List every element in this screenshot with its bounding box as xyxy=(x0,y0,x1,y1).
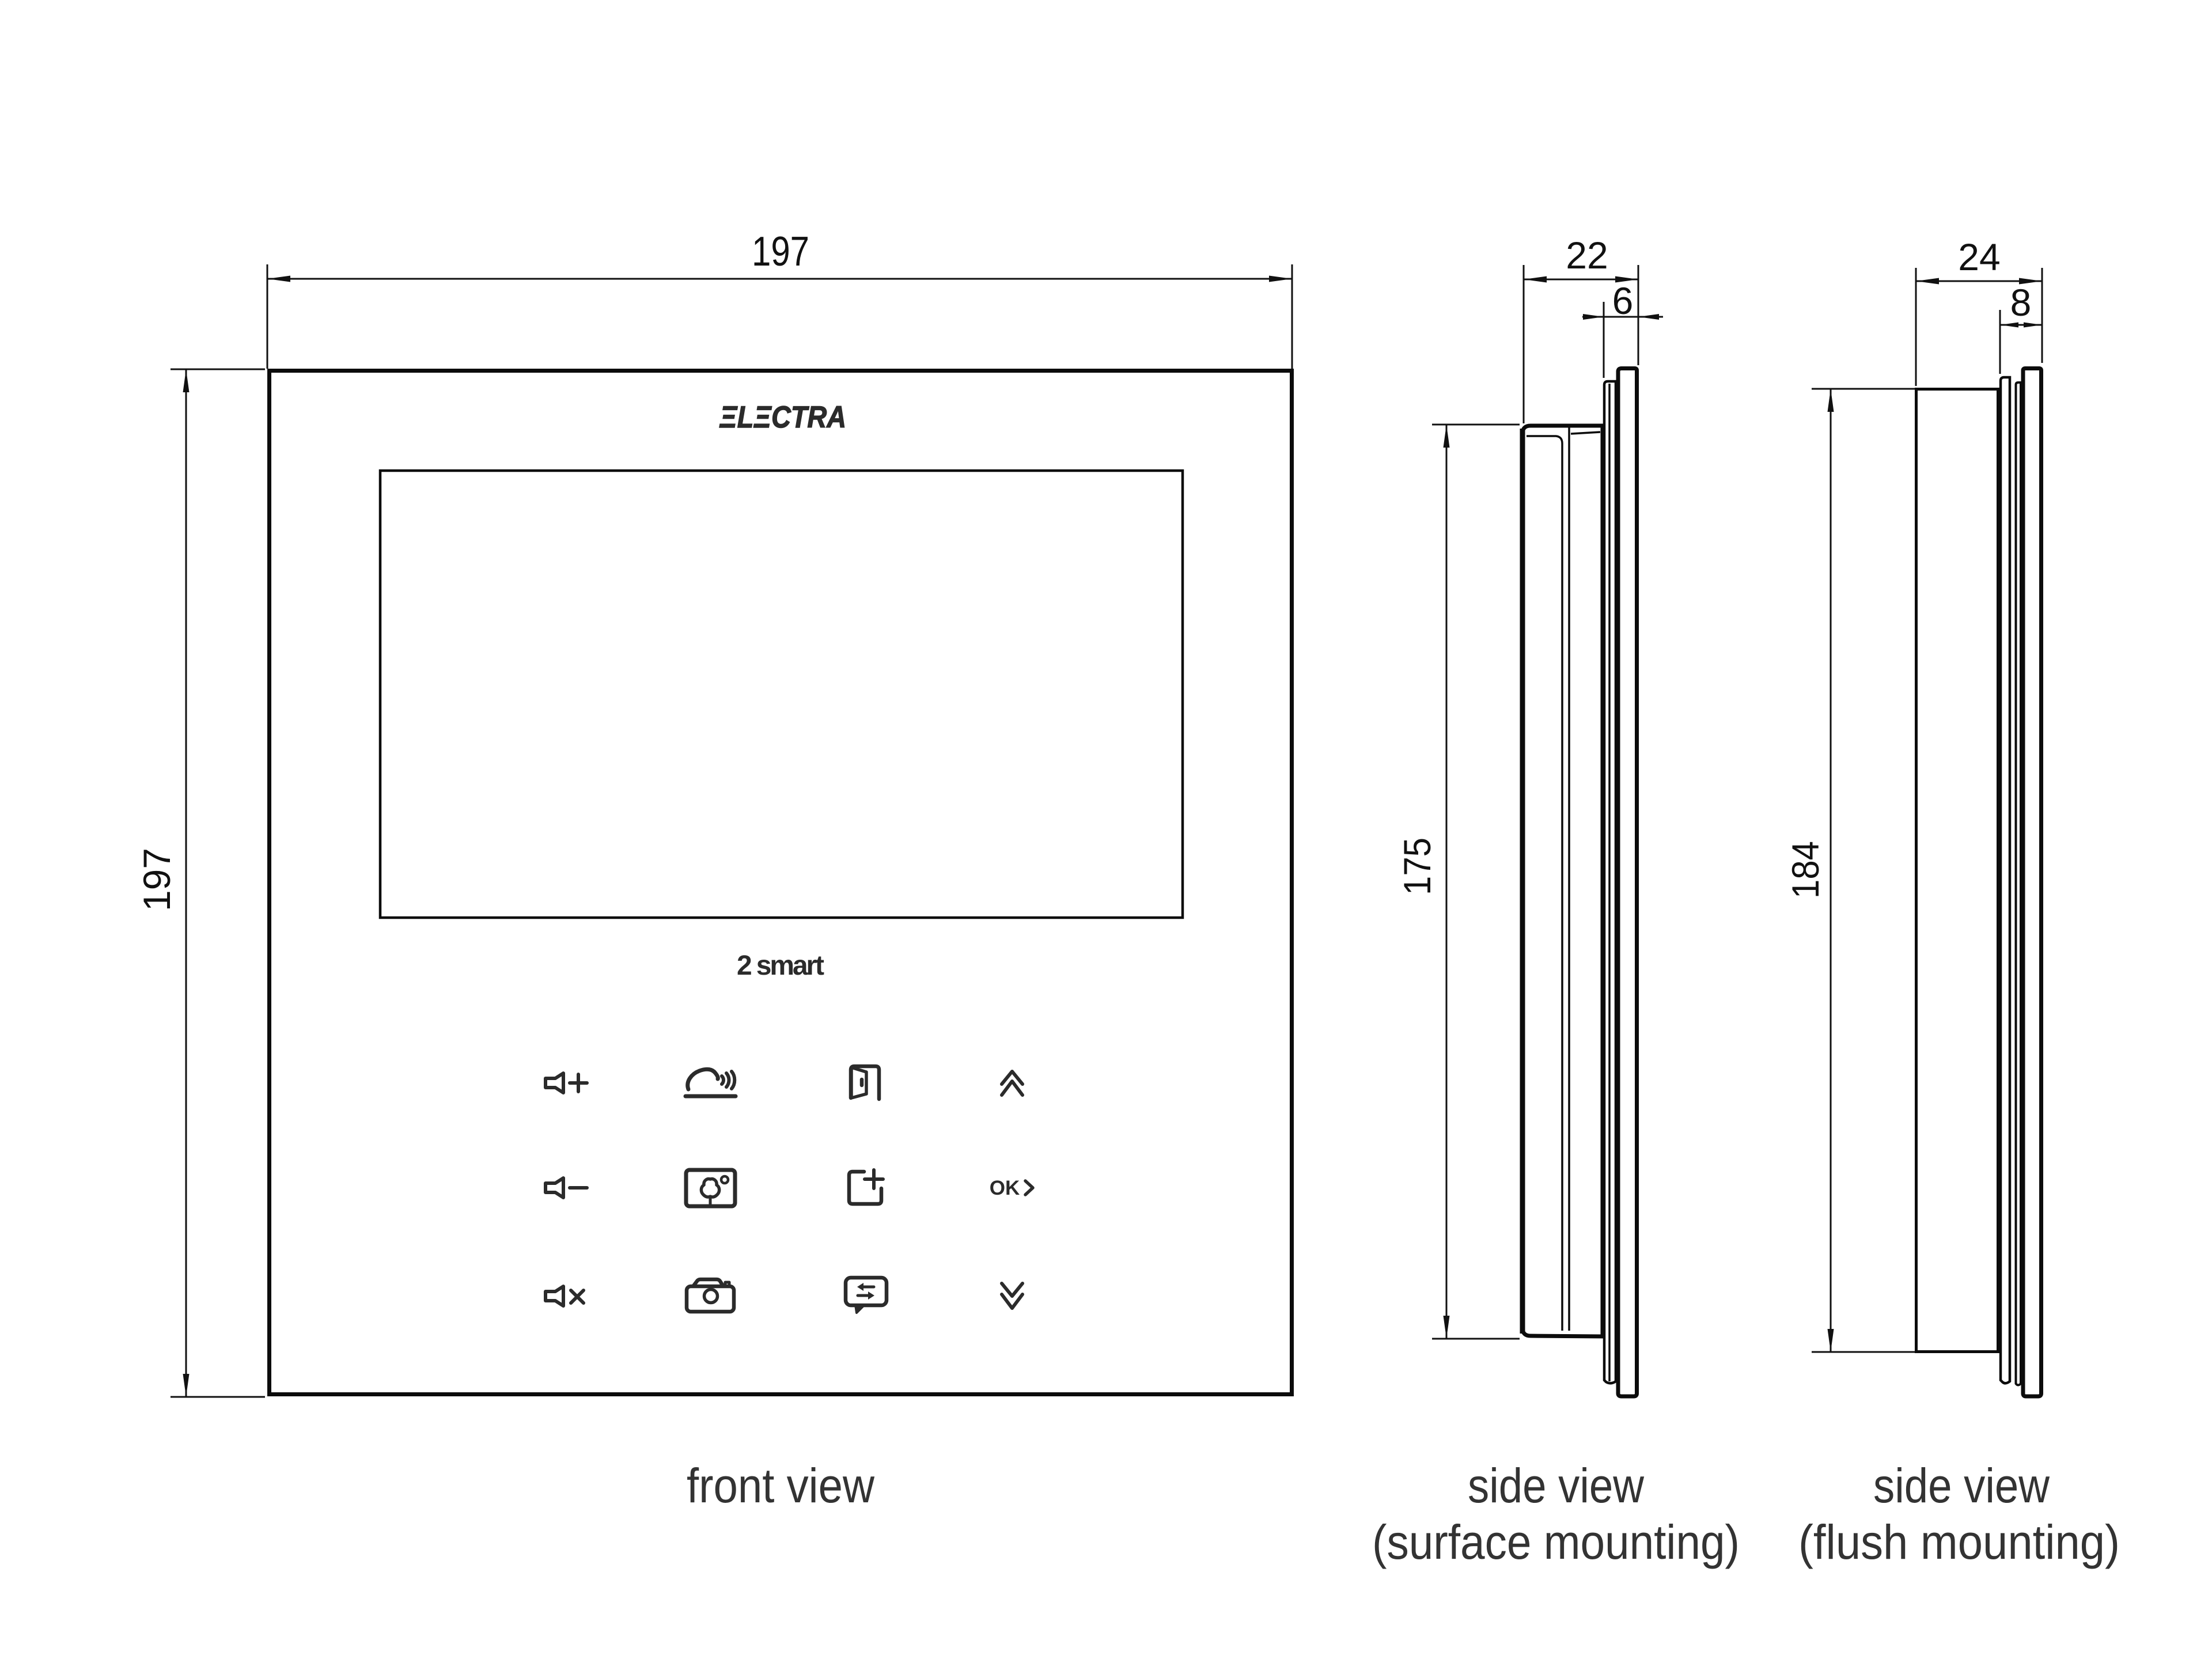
svg-text:197: 197 xyxy=(135,848,178,911)
svg-text:6: 6 xyxy=(1612,279,1634,322)
svg-text:side view: side view xyxy=(1873,1459,2050,1513)
svg-text:(surface mounting): (surface mounting) xyxy=(1372,1515,1740,1569)
svg-text:ΞLΞCTRA: ΞLΞCTRA xyxy=(719,400,846,434)
svg-text:184: 184 xyxy=(1784,841,1827,899)
svg-text:8: 8 xyxy=(2010,281,2032,324)
svg-text:197: 197 xyxy=(752,229,809,275)
svg-text:22: 22 xyxy=(1566,234,1608,276)
svg-text:side view: side view xyxy=(1468,1459,1644,1513)
svg-text:24: 24 xyxy=(1958,236,2000,278)
svg-text:OK: OK xyxy=(990,1177,1020,1199)
svg-text:(flush mounting): (flush mounting) xyxy=(1798,1515,2120,1569)
svg-text:175: 175 xyxy=(1396,838,1438,895)
svg-text:front view: front view xyxy=(687,1459,874,1513)
svg-text:2 smart: 2 smart xyxy=(737,950,824,981)
